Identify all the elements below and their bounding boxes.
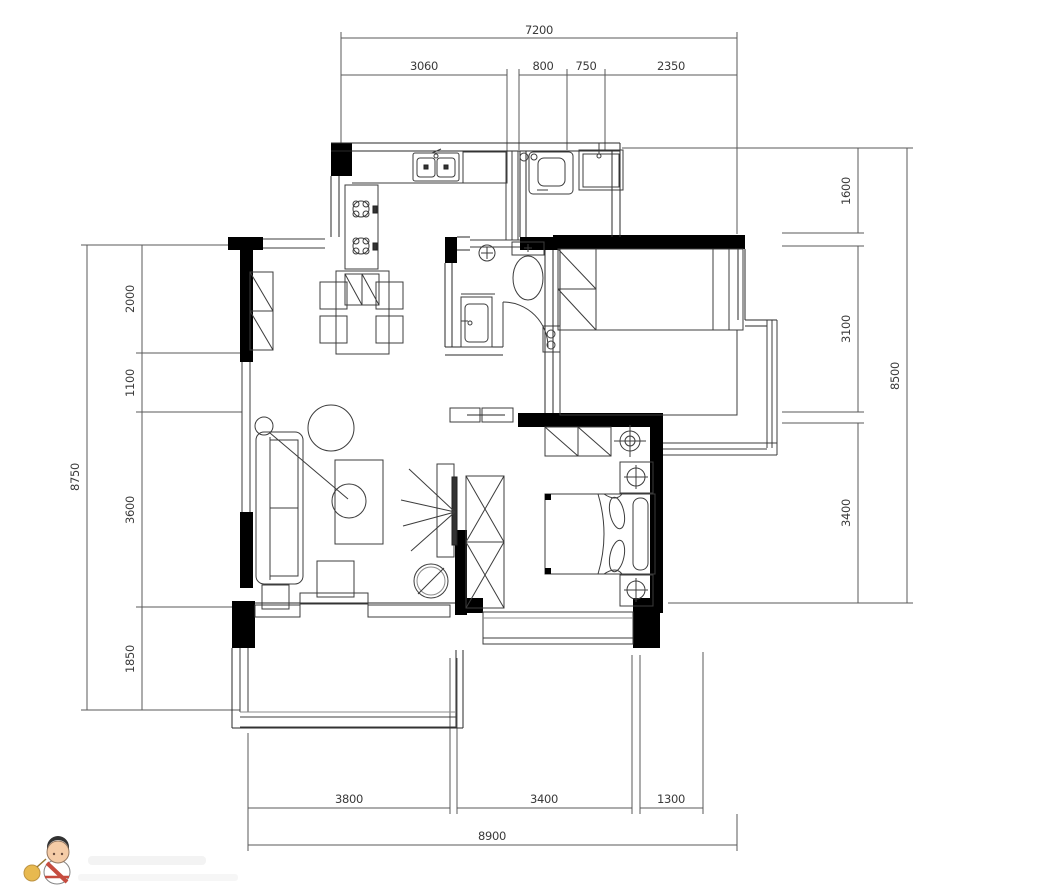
sliding-door-panel <box>368 605 450 617</box>
floor-lamp-icon <box>255 417 348 499</box>
washbasin-icon <box>461 294 495 347</box>
floor-plan-canvas: 7200 3060 800 750 2350 8750 2000 1100 <box>0 0 1060 892</box>
wall-left-upper <box>240 250 253 362</box>
gas-stove-icon <box>345 185 378 269</box>
dim-right-seg3: 3400 <box>839 499 853 527</box>
kitchen <box>345 149 507 305</box>
wall-master-right <box>650 413 663 613</box>
mascot-icon <box>24 836 70 884</box>
coffee-table-icon <box>332 460 383 544</box>
dim-top-seg4: 2350 <box>657 59 685 73</box>
toilet-icon <box>512 242 544 300</box>
burner-icon <box>353 201 369 217</box>
dim-top-seg2: 800 <box>532 59 553 73</box>
nightstand-icon <box>620 462 653 493</box>
dim-right-overall: 8500 <box>888 362 902 390</box>
chair-icon <box>320 282 347 309</box>
washing-machine-icon <box>529 152 573 194</box>
burner-icon <box>353 238 369 254</box>
window-living-top <box>263 239 325 248</box>
utility-sink-icon <box>579 143 623 190</box>
floor-drain-icon <box>479 245 495 261</box>
window-balcony-left <box>240 648 248 712</box>
wardrobe-icon <box>558 249 596 330</box>
vent-icon <box>520 153 528 161</box>
wall-bedroom-sw <box>455 598 483 613</box>
counter <box>463 152 507 183</box>
bay-window-master <box>483 612 633 644</box>
watermark-text <box>78 856 238 881</box>
second-bedroom <box>558 249 743 415</box>
bay-window-bedroom2 <box>663 320 777 455</box>
panel-icon <box>543 326 560 352</box>
master-bedroom <box>466 425 655 644</box>
wall-bath-nw <box>445 237 457 263</box>
watermark <box>24 836 238 884</box>
dim-left-overall: 8750 <box>68 463 82 491</box>
double-sink-icon <box>413 149 459 181</box>
potted-plant-icon <box>414 564 448 598</box>
wall-left-lower <box>240 512 253 588</box>
pillow-icon <box>607 496 627 530</box>
dimension-bottom: 3800 3400 1300 8900 <box>248 652 737 851</box>
dim-top-seg1: 3060 <box>410 59 438 73</box>
living-dining <box>250 271 457 609</box>
cabinet-icon <box>345 274 379 305</box>
wall-living-nw <box>228 237 263 250</box>
cabinet-icon <box>545 427 611 456</box>
dim-right-seg1: 1600 <box>839 177 853 205</box>
dim-right-seg2: 3100 <box>839 315 853 343</box>
double-bed-icon <box>545 494 655 574</box>
sliding-door-panel <box>300 593 368 604</box>
plant-icon <box>308 405 354 451</box>
window-balcony-bottom <box>240 712 456 727</box>
dim-left-seg3: 3600 <box>123 496 137 524</box>
entry-sliding-door <box>506 151 518 240</box>
wall-balcony-nw <box>232 601 255 648</box>
wall-bedroom2-top <box>553 235 745 249</box>
dim-bottom-overall: 8900 <box>478 829 506 843</box>
window-living-left <box>242 362 250 512</box>
dim-left-seg1: 2000 <box>123 285 137 313</box>
walls-thin <box>232 143 777 728</box>
dimension-top: 7200 3060 800 750 2350 <box>341 23 737 234</box>
dim-top-overall: 7200 <box>525 23 553 37</box>
dim-left-seg4: 1850 <box>123 645 137 673</box>
platform-bed <box>560 330 737 415</box>
wardrobe-icon <box>466 476 504 608</box>
single-bed-icon <box>596 249 743 330</box>
floor-plan-svg: 7200 3060 800 750 2350 8750 2000 1100 <box>0 0 1060 892</box>
wall-kitchen-nw <box>331 143 352 176</box>
dim-bottom-seg3: 1300 <box>657 792 685 806</box>
stool-icon <box>317 561 354 597</box>
dim-bottom-seg2: 3400 <box>530 792 558 806</box>
dim-bottom-seg1: 3800 <box>335 792 363 806</box>
tv-icon <box>401 464 457 557</box>
dim-top-seg3: 750 <box>575 59 596 73</box>
dimension-left: 8750 2000 1100 3600 1850 <box>68 245 242 710</box>
cabinet-icon <box>250 272 273 350</box>
dim-left-seg2: 1100 <box>123 369 137 397</box>
pillow-icon <box>607 539 627 573</box>
chair-icon <box>320 316 347 343</box>
ceiling-lamp-icon <box>614 425 646 457</box>
door-swing-icon <box>503 302 548 347</box>
